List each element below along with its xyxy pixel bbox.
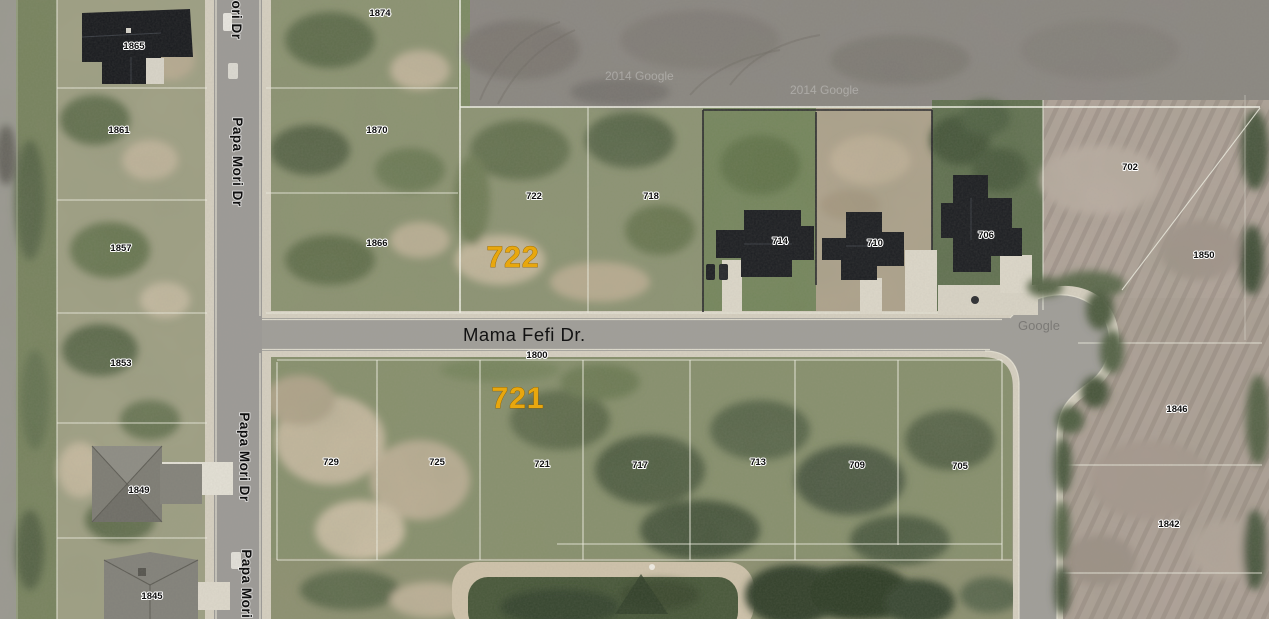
parcel-label-714: 714 — [772, 236, 789, 247]
parcel-label-718: 718 — [643, 191, 659, 202]
street-label-papa-mori-upper: Papa Mori Dr — [230, 117, 245, 207]
parcel-label-717: 717 — [632, 460, 648, 471]
parcel-label-721: 721 — [534, 459, 551, 470]
imagery-grain — [0, 0, 1269, 619]
parcel-label-1866: 1866 — [366, 238, 387, 249]
imagery-watermark: 2014 Google — [605, 69, 674, 83]
parcel-label-705: 705 — [952, 461, 969, 472]
address-label-1800: 1800 — [526, 350, 547, 361]
parcel-label-1842: 1842 — [1158, 519, 1179, 530]
parcel-label-1853: 1853 — [110, 358, 131, 369]
parcel-label-1849: 1849 — [128, 485, 149, 496]
parcel-label-709: 709 — [849, 460, 865, 471]
parcel-label-729: 729 — [323, 457, 339, 468]
parcel-label-1874: 1874 — [369, 8, 391, 19]
satellite-map-viewport[interactable]: 1865 1861 1857 1853 1849 1845 1874 1870 … — [0, 0, 1269, 619]
parcel-label-713: 713 — [750, 457, 766, 468]
street-label-papa-mori-bottom: Papa Mori Dr — [239, 549, 254, 619]
imagery-watermark: 2014 Google — [790, 83, 859, 97]
parcel-label-1870: 1870 — [366, 125, 387, 136]
highlight-label-721: 721 — [491, 382, 544, 415]
parcel-label-1865: 1865 — [123, 41, 145, 52]
parcel-label-710: 710 — [867, 238, 883, 249]
parcel-label-1861: 1861 — [108, 125, 130, 136]
google-watermark: Google — [1018, 318, 1060, 333]
parcel-label-725: 725 — [429, 457, 446, 468]
parcel-label-1857: 1857 — [110, 243, 131, 254]
parcel-label-706: 706 — [978, 230, 994, 241]
street-label-papa-mori-top-partial: ori Dr — [229, 0, 244, 39]
satellite-map-canvas[interactable]: 1865 1861 1857 1853 1849 1845 1874 1870 … — [0, 0, 1269, 619]
parcel-label-1845: 1845 — [141, 591, 163, 602]
parcel-label-1850: 1850 — [1193, 250, 1214, 261]
street-label-mama-fefi: Mama Fefi Dr. — [463, 324, 586, 345]
parcel-label-722: 722 — [526, 191, 542, 202]
parcel-label-702: 702 — [1122, 162, 1138, 173]
highlight-label-722: 722 — [486, 241, 539, 274]
parcel-label-1846: 1846 — [1166, 404, 1187, 415]
street-label-papa-mori-lower: Papa Mori Dr — [237, 412, 252, 502]
